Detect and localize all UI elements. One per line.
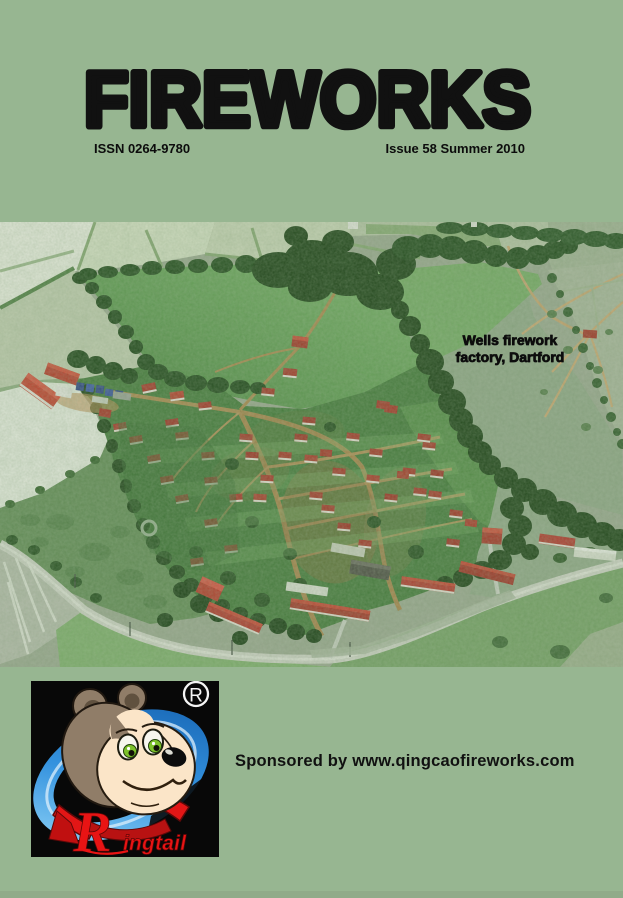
svg-text:R: R (189, 686, 203, 707)
svg-text:factory, Dartford: factory, Dartford (456, 349, 565, 365)
svg-text:FIREWORKS: FIREWORKS (84, 55, 531, 143)
svg-text:ingtail: ingtail (123, 832, 187, 855)
svg-text:R: R (72, 799, 112, 857)
svg-text:Wells firework: Wells firework (463, 332, 558, 348)
